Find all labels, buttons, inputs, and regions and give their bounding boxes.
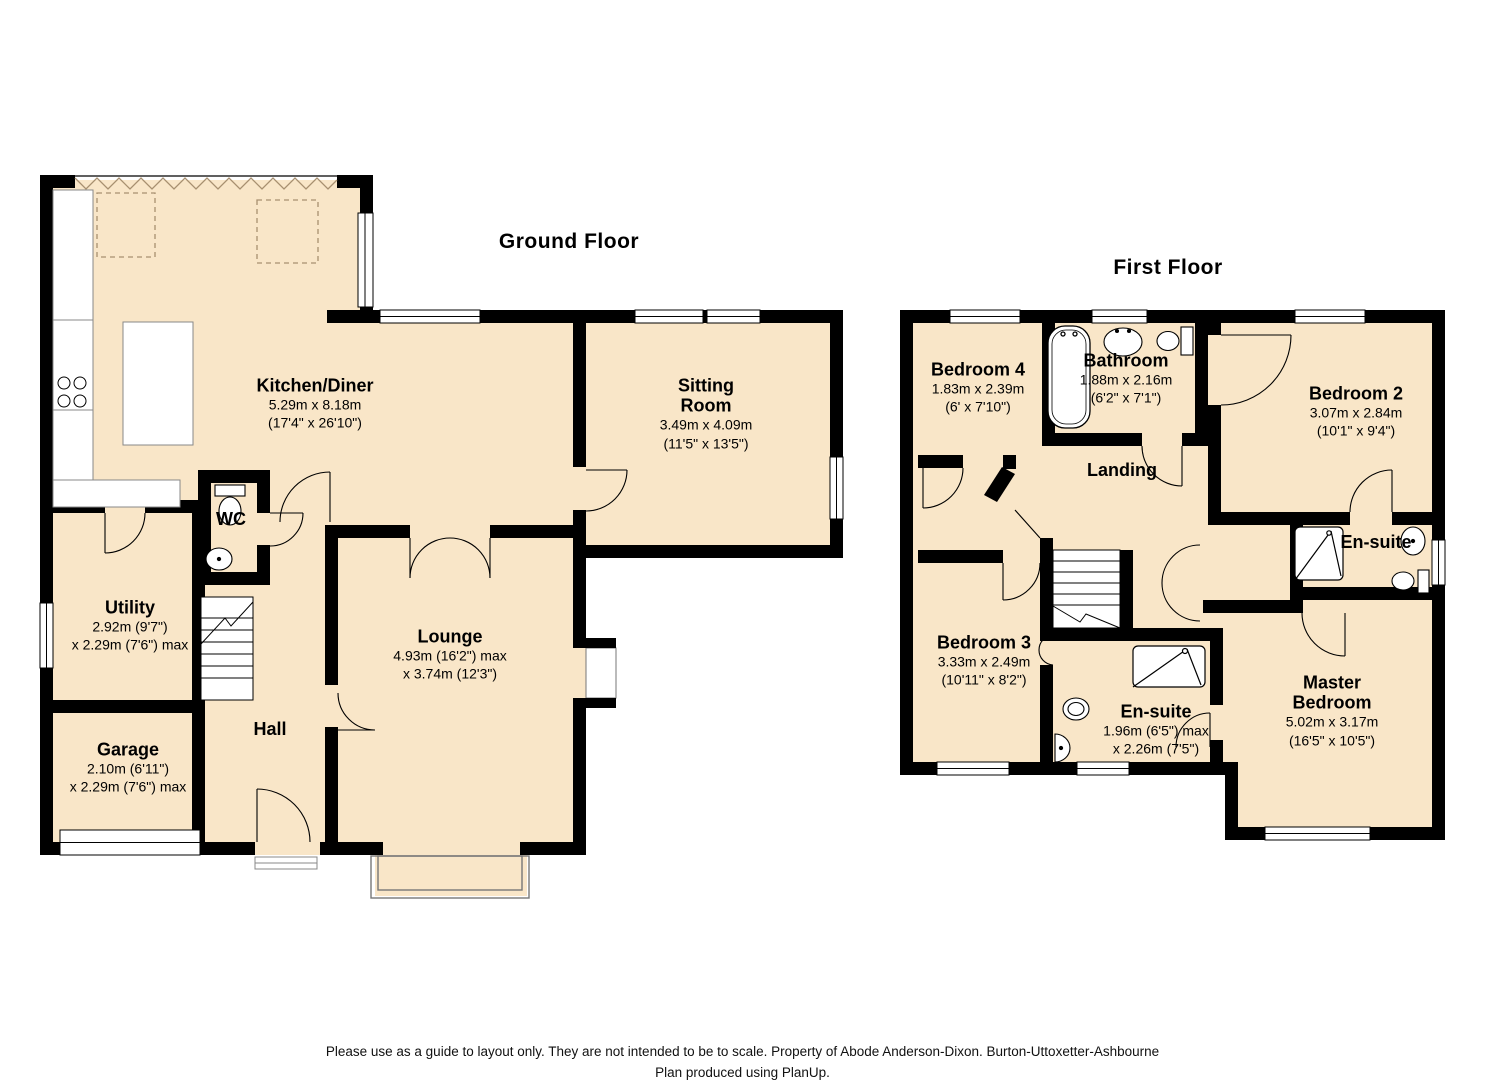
room-dims: 1.88m x 2.16m <box>1080 371 1173 389</box>
room-label-garage: Garage 2.10m (6'11") x 2.29m (7'6") max <box>70 740 187 797</box>
room-label-bedroom3: Bedroom 3 3.33m x 2.49m (10'11" x 8'2") <box>937 633 1031 690</box>
room-dims: 5.29m x 8.18m <box>256 396 373 414</box>
shower-icon <box>1133 646 1205 687</box>
room-label-ensuite-bottom: En-suite 1.96m (6'5") max x 2.26m (7'5") <box>1103 702 1209 759</box>
room-label-kitchen: Kitchen/Diner 5.29m x 8.18m (17'4" x 26'… <box>256 376 373 433</box>
room-name: Bathroom <box>1080 351 1173 371</box>
shower-icon <box>1295 527 1343 580</box>
room-name: Sitting Room <box>660 376 753 416</box>
room-dims: (6'2" x 7'1") <box>1080 389 1173 407</box>
room-label-landing: Landing <box>1087 460 1157 480</box>
disclaimer-line2: Plan produced using PlanUp. <box>0 1063 1485 1080</box>
ground-floor-title: Ground Floor <box>499 230 639 254</box>
room-label-lounge: Lounge 4.93m (16'2") max x 3.74m (12'3") <box>393 627 506 684</box>
room-name: Bedroom 4 <box>931 360 1025 380</box>
stairs <box>201 597 253 700</box>
kitchen-island <box>123 322 193 445</box>
room-name: Landing <box>1087 460 1157 480</box>
room-name: WC <box>216 509 246 529</box>
floorplan-page: Ground Floor First Floor Kitchen/Diner 5… <box>0 0 1485 1080</box>
room-dims: 1.96m (6'5") max <box>1103 722 1209 740</box>
room-dims: x 2.29m (7'6") max <box>72 636 189 654</box>
room-dims: 3.33m x 2.49m <box>937 653 1031 671</box>
room-label-ensuite-top: En-suite <box>1340 532 1411 552</box>
basin-icon <box>206 548 232 570</box>
room-dims: x 3.74m (12'3") <box>393 665 506 683</box>
room-dims: 4.93m (16'2") max <box>393 647 506 665</box>
room-label-wc: WC <box>216 509 246 529</box>
room-dims: x 2.29m (7'6") max <box>70 778 187 796</box>
room-label-master: Master Bedroom 5.02m x 3.17m (16'5" x 10… <box>1286 673 1379 750</box>
room-dims: (11'5" x 13'5") <box>660 434 753 452</box>
room-name: Bedroom 2 <box>1309 384 1403 404</box>
first-floor-title: First Floor <box>1113 256 1222 280</box>
room-name: Lounge <box>393 627 506 647</box>
room-name: Garage <box>70 740 187 760</box>
room-dims: (6' x 7'10") <box>931 398 1025 416</box>
ground-floor-plan <box>35 170 860 910</box>
disclaimer: Please use as a guide to layout only. Th… <box>0 1042 1485 1080</box>
room-name: En-suite <box>1340 532 1411 552</box>
disclaimer-line1: Please use as a guide to layout only. Th… <box>0 1042 1485 1063</box>
room-dims: (10'1" x 9'4") <box>1309 422 1403 440</box>
room-label-utility: Utility 2.92m (9'7") x 2.29m (7'6") max <box>72 598 189 655</box>
room-name: En-suite <box>1103 702 1209 722</box>
room-dims: (17'4" x 26'10") <box>256 414 373 432</box>
room-dims: (16'5" x 10'5") <box>1286 731 1379 749</box>
room-label-bedroom2: Bedroom 2 3.07m x 2.84m (10'1" x 9'4") <box>1309 384 1403 441</box>
room-label-bathroom: Bathroom 1.88m x 2.16m (6'2" x 7'1") <box>1080 351 1173 408</box>
room-dims: (10'11" x 8'2") <box>937 671 1031 689</box>
garage-door <box>60 830 200 855</box>
room-label-bedroom4: Bedroom 4 1.83m x 2.39m (6' x 7'10") <box>931 360 1025 417</box>
room-label-sitting-room: Sitting Room 3.49m x 4.09m (11'5" x 13'5… <box>660 376 753 453</box>
room-label-hall: Hall <box>253 719 286 739</box>
room-name: Hall <box>253 719 286 739</box>
room-name: Bedroom 3 <box>937 633 1031 653</box>
room-dims: 2.92m (9'7") <box>72 618 189 636</box>
room-name: Utility <box>72 598 189 618</box>
room-dims: 3.49m x 4.09m <box>660 416 753 434</box>
chimney-recess <box>586 648 616 698</box>
room-dims: 3.07m x 2.84m <box>1309 404 1403 422</box>
room-dims: 2.10m (6'11") <box>70 760 187 778</box>
room-dims: 1.83m x 2.39m <box>931 380 1025 398</box>
room-name: Kitchen/Diner <box>256 376 373 396</box>
room-dims: 5.02m x 3.17m <box>1286 713 1379 731</box>
room-name: Master Bedroom <box>1286 673 1379 713</box>
stairs <box>1053 550 1120 628</box>
porch-step <box>255 857 317 869</box>
toilet-icon <box>1063 698 1089 720</box>
room-dims: x 2.26m (7'5") <box>1103 740 1209 758</box>
